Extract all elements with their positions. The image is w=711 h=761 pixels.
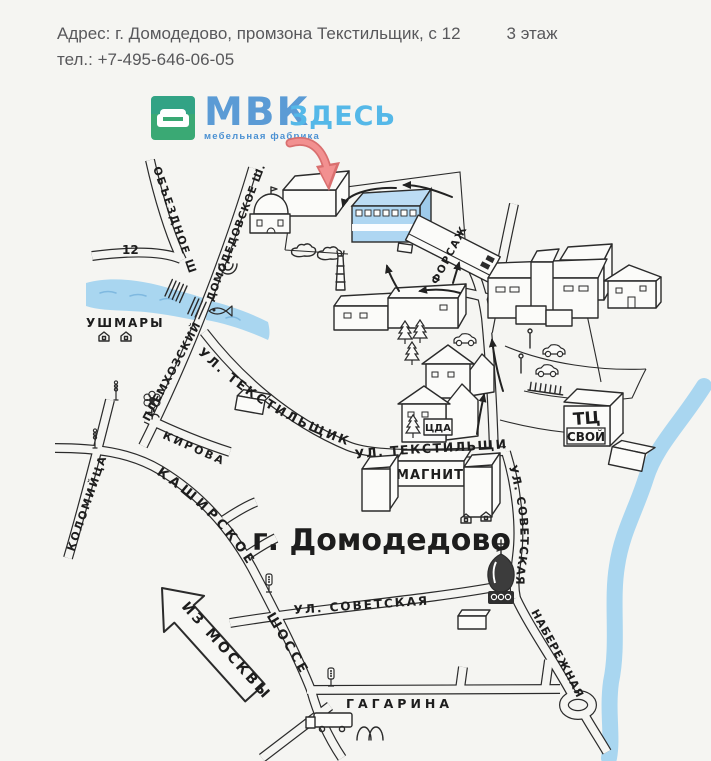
house-icon xyxy=(99,332,109,341)
slab-building xyxy=(458,610,490,629)
mcdonalds-arches-icon xyxy=(357,727,383,740)
svoy-label: СВОЙ xyxy=(567,429,605,444)
magnit-label: МАГНИТ xyxy=(396,468,464,483)
chimney-icon xyxy=(336,251,345,290)
hand-drawn-map: ЦДА МАГНИТ ТЦ СВОЙ xyxy=(0,0,711,761)
slab-building xyxy=(362,455,398,511)
shosse-label: ШОССЕ xyxy=(263,610,312,678)
directions-flyer: Адрес: г. Домодедово, промзона Текстильщ… xyxy=(0,0,711,761)
gate-icon xyxy=(398,243,413,253)
ushmary-label: УШМАРЫ xyxy=(86,316,165,330)
car-icon xyxy=(536,365,558,377)
kashirskoe-label: КАШИРСКОЕ xyxy=(154,465,259,570)
white-warehouse-building xyxy=(283,171,349,216)
house-icon xyxy=(121,332,131,341)
sign-post-icon xyxy=(519,329,532,373)
car-icon xyxy=(543,345,565,357)
tc-svoy-building: ТЦ СВОЙ xyxy=(564,389,623,446)
kolomiytsa-label: КОЛОМИЙЦА xyxy=(65,453,110,553)
gagarina-label: ГАГАРИНА xyxy=(346,696,453,711)
city-label: г. Домодедово xyxy=(252,523,511,558)
street-lamp-icon xyxy=(114,381,119,400)
plemhozskiy-label: ПЛЕМХОЗСКИЙ xyxy=(140,319,204,423)
tc-label: ТЦ xyxy=(572,408,601,430)
slab-building xyxy=(464,453,500,517)
car-icon xyxy=(454,334,476,346)
sovetskaya-h-label: УЛ. СОВЕТСКАЯ xyxy=(293,594,429,617)
pine-tree-icon xyxy=(405,342,419,365)
cda-label: ЦДА xyxy=(425,423,451,434)
traffic-light-icon xyxy=(328,668,334,686)
road-12-label: 12 xyxy=(122,243,139,257)
